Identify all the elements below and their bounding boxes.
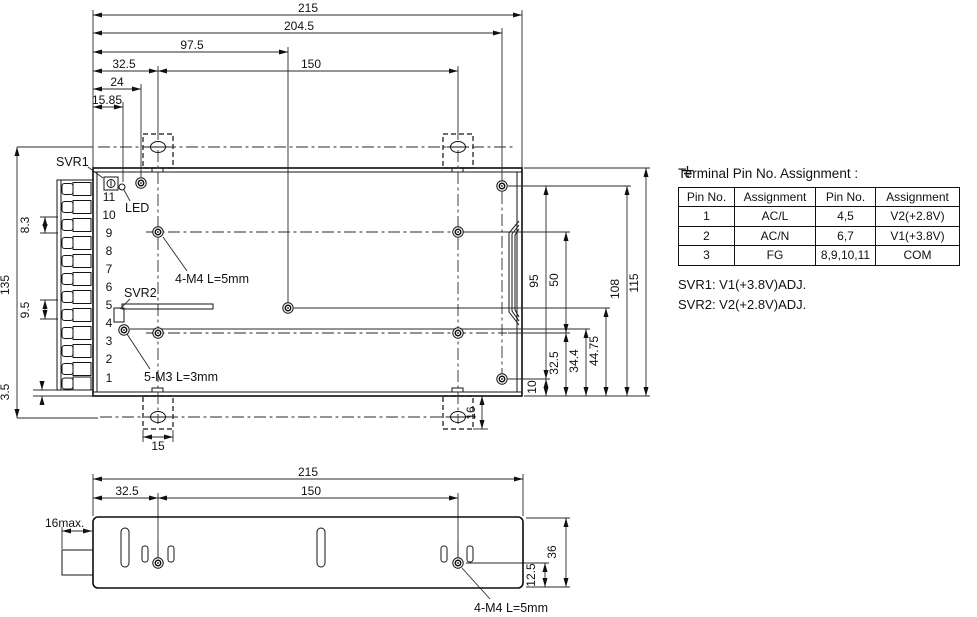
cell-pin: 1	[679, 207, 735, 227]
svr2-note: SVR2: V2(+2.8V)ADJ.	[678, 295, 962, 316]
vent-slot-small	[467, 546, 473, 562]
header-assignment: Assignment	[735, 188, 816, 207]
adjust-slot	[122, 304, 213, 309]
cell-pin: 3	[679, 246, 735, 266]
cell-assign2: V1(+3.8V)	[876, 226, 960, 246]
led-indicator	[119, 184, 125, 190]
cell-assign2: V2(+2.8V)	[876, 207, 960, 227]
cell-assign: FG	[735, 246, 816, 266]
svr1-label: SVR1	[56, 155, 89, 169]
components	[104, 177, 507, 384]
dim-24-label: 24	[110, 75, 124, 89]
vent-slot-small	[441, 546, 447, 562]
cell-pin2: 8,9,10,11	[816, 246, 876, 266]
callouts: SVR1 LED SVR2 4-M4 L=5mm 5-M3 L=3mm	[56, 155, 249, 384]
side-dim-215-label: 215	[298, 465, 318, 479]
cell-assign2: COM	[876, 246, 960, 266]
pin-number: 3	[106, 334, 113, 348]
pin-number: 4	[106, 316, 113, 330]
side-body	[62, 517, 523, 588]
dim-32-5-label: 32.5	[112, 57, 136, 71]
header-pin-no-2: Pin No.	[816, 188, 876, 207]
dim-95-label: 95	[527, 274, 541, 288]
pin-number: 8	[106, 244, 113, 258]
pin-number: 11	[103, 190, 116, 204]
dim-3-5-label: 3.5	[0, 383, 12, 400]
dim-44-75-label: 44.75	[587, 336, 601, 366]
side-dim-36-label: 36	[545, 545, 559, 559]
cell-pin2: 6,7	[816, 226, 876, 246]
cell-assign: AC/N	[735, 226, 816, 246]
vent-slot	[317, 528, 325, 567]
dim-108-label: 108	[608, 279, 622, 299]
right-dimensions: 95 10 50 32.5 34.4 44.75 108 115	[525, 168, 646, 396]
table-row: 1 AC/L 4,5 V2(+2.8V)	[679, 207, 960, 227]
dim-8-3-label: 8.3	[18, 216, 32, 233]
side-dim-150-label: 150	[301, 484, 321, 498]
pin-number: 2	[106, 352, 113, 366]
pin-number: 6	[106, 280, 113, 294]
pin-number: 10	[102, 208, 116, 222]
top-dimensions: 215 204.5 97.5 32.5 150 24 15.85	[92, 1, 522, 107]
table-row: 3 FG 8,9,10,11 COM	[679, 246, 960, 266]
dim-215-label: 215	[298, 1, 318, 15]
terminal-cover-side	[62, 550, 93, 575]
case-side	[93, 517, 523, 588]
svr2-pot	[114, 308, 124, 322]
table-header-row: Pin No. Assignment Pin No. Assignment	[679, 188, 960, 207]
top-view: 215 204.5 97.5 32.5 150 24 15.85 135 8.3	[0, 1, 650, 453]
cell-pin: 2	[679, 226, 735, 246]
header-assignment-2: Assignment	[876, 188, 960, 207]
dim-15-85-label: 15.85	[92, 93, 122, 107]
terminal-block: 11 10 9 8 7 6 5 4 3 2 1	[57, 180, 116, 390]
pin-number: 5	[106, 298, 113, 312]
svr-notes: SVR1: V1(+3.8V)ADJ. SVR2: V2(+2.8V)ADJ.	[678, 275, 962, 316]
table-row: 2 AC/N 6,7 V1(+3.8V)	[679, 226, 960, 246]
terminal-fingers	[62, 183, 91, 391]
side-dim-32-5-label: 32.5	[115, 484, 139, 498]
pin-table: Pin No. Assignment Pin No. Assignment 1 …	[678, 187, 960, 266]
fg-text: FG	[767, 248, 784, 262]
mounting-brackets	[98, 134, 514, 429]
side-dim-12-5-label: 12.5	[524, 563, 538, 587]
led-label: LED	[125, 201, 149, 215]
svr1-note: SVR1: V1(+3.8V)ADJ.	[678, 275, 962, 296]
dim-115-label: 115	[627, 273, 641, 292]
pin-number: 9	[106, 226, 113, 240]
dim-32-5-right-label: 32.5	[547, 351, 561, 375]
vent-slot-small	[168, 546, 174, 562]
vent-slot-small	[142, 546, 148, 562]
dim-16-label: 16	[464, 406, 478, 420]
dim-15-label: 15	[151, 439, 165, 453]
vent-slot	[121, 528, 129, 567]
dim-150-label: 150	[301, 57, 321, 71]
dim-50-label: 50	[547, 273, 561, 287]
side-m4-screw-label: 4-M4 L=5mm	[474, 601, 548, 615]
dim-135-label: 135	[0, 275, 12, 295]
bracket-dimensions: 15 16	[143, 396, 488, 453]
header-pin-no: Pin No.	[679, 188, 735, 207]
m4-screw-label: 4-M4 L=5mm	[175, 272, 249, 286]
pin-assignment-panel: Terminal Pin No. Assignment : Pin No. As…	[678, 166, 962, 316]
cell-assign: AC/L	[735, 207, 816, 227]
dim-204-5-label: 204.5	[284, 19, 314, 33]
side-view: 215 32.5 150 16max. 36 12.5	[45, 465, 570, 615]
cell-pin2: 4,5	[816, 207, 876, 227]
dim-97-5-label: 97.5	[180, 38, 204, 52]
svr2-label: SVR2	[124, 286, 157, 300]
m3-screw-label: 5-M3 L=3mm	[144, 370, 218, 384]
pin-numbers: 11 10 9 8 7 6 5 4 3 2 1	[102, 190, 116, 385]
pin-number: 7	[106, 262, 113, 276]
dim-9-5-label: 9.5	[18, 301, 32, 318]
dim-34-4-label: 34.4	[567, 349, 581, 373]
side-dim-16max-label: 16max.	[45, 516, 84, 530]
table-title: Terminal Pin No. Assignment :	[678, 166, 962, 181]
side-dimensions: 215 32.5 150 16max. 36 12.5	[45, 465, 566, 587]
psu-dimensional-drawing-page: 215 204.5 97.5 32.5 150 24 15.85 135 8.3	[0, 0, 977, 617]
pin-number: 1	[106, 371, 113, 385]
dim-10-label: 10	[525, 380, 539, 394]
